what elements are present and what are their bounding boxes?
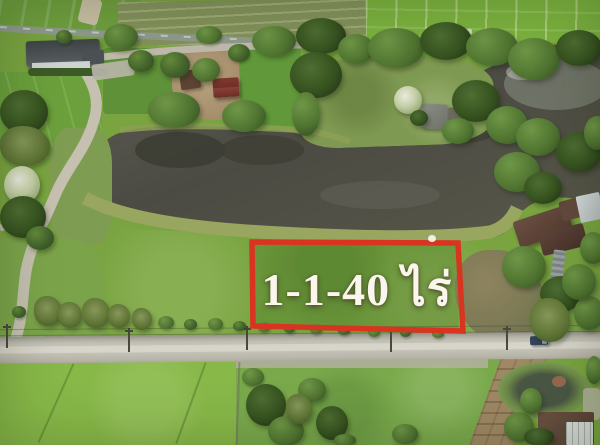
aerial-land-photo: 1-1-40 ไร่ — [0, 0, 600, 445]
area-size-label: 1-1-40 ไร่ — [248, 248, 466, 330]
plot-annotation-layer — [0, 0, 600, 445]
white-speck — [428, 235, 436, 242]
